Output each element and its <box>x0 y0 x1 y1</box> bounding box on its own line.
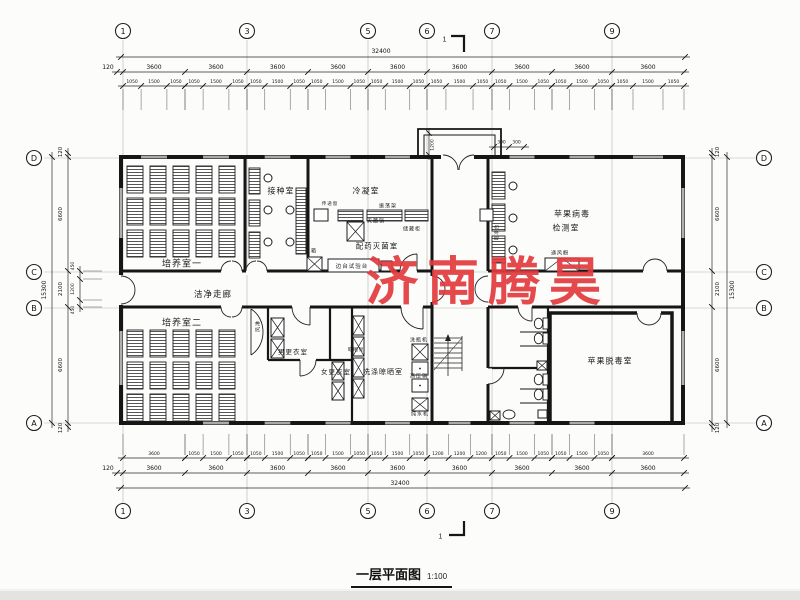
dim-label: 6600 <box>58 207 64 221</box>
dim-label: 3600 <box>514 64 529 71</box>
door-opening <box>221 267 242 275</box>
dim-label: 1050 <box>170 79 182 85</box>
dim-label: 3600 <box>148 451 160 457</box>
dim-label: 1500 <box>210 79 222 85</box>
grid-bubble-label: A <box>31 419 37 428</box>
dim-label: 1500 <box>148 79 160 85</box>
dim-label: 3600 <box>146 465 161 472</box>
dim-label: 1050 <box>250 451 262 457</box>
stool <box>264 238 272 246</box>
air-shower <box>251 309 263 355</box>
page-footer-bar <box>0 589 800 600</box>
dim-label: 1050 <box>311 451 323 457</box>
rack-shelf <box>249 232 260 258</box>
dim-label: 1500 <box>392 451 404 457</box>
dim-label: 6600 <box>715 358 721 372</box>
rack-shelf <box>249 200 260 226</box>
rack-shelf <box>173 230 189 257</box>
dim-label: 3600 <box>574 465 589 472</box>
dim-label: 1050 <box>598 79 610 85</box>
dim-label: 120 <box>102 64 114 71</box>
rack-shelf <box>338 210 363 221</box>
rack-shelf <box>196 362 212 389</box>
door-opening <box>246 267 267 275</box>
dim-label: 1050 <box>431 79 443 85</box>
dim-label: 1500 <box>210 451 222 457</box>
stool <box>264 174 272 182</box>
dim-label: 1200 <box>432 451 444 457</box>
dim-label: 1500 <box>576 79 588 85</box>
equipment-dot <box>419 385 421 387</box>
dim-label: 3600 <box>208 465 223 472</box>
rack-shelf <box>196 394 212 421</box>
rack-shelf <box>367 210 402 221</box>
dim-label: 32400 <box>371 48 390 55</box>
drawing-title: 一层平面图 <box>356 567 421 582</box>
dim-label: 1050 <box>354 79 366 85</box>
dim-label: 1500 <box>332 451 344 457</box>
dim-label: 15300 <box>729 280 736 299</box>
dim-label: 15300 <box>41 280 48 299</box>
dim-label: 1050 <box>311 79 323 85</box>
grid-bubble-label: 6 <box>424 27 429 36</box>
rack-shelf <box>173 362 189 389</box>
drawing-title-block: 一层平面图1:100 <box>351 564 452 588</box>
rack-shelf <box>127 230 143 257</box>
grid-bubble-label: 1 <box>120 507 125 516</box>
rack-shelf <box>492 172 505 199</box>
dim-label: 3600 <box>330 465 345 472</box>
sink <box>503 410 515 419</box>
rack-shelf <box>150 166 166 193</box>
watermark: 济南腾昊 <box>366 252 610 314</box>
dim-label: 1050 <box>538 451 550 457</box>
rack-shelf <box>150 230 166 257</box>
dim-label: 1200 <box>430 139 436 151</box>
rack-shelf <box>196 230 212 257</box>
door-opening <box>300 356 316 364</box>
dim-label: 1200 <box>70 283 76 295</box>
grid-bubble-label: 5 <box>365 507 370 516</box>
rack-shelf <box>219 394 235 421</box>
dim-label: 120 <box>715 146 721 157</box>
dim-label: 1050 <box>555 451 567 457</box>
toilet <box>543 389 548 400</box>
toilet-bowl <box>534 374 542 385</box>
dim-label: 1050 <box>538 79 550 85</box>
rack-shelf <box>173 330 189 357</box>
rack-shelf <box>150 362 166 389</box>
rack-shelf <box>173 166 189 193</box>
dim-label: 1500 <box>392 79 404 85</box>
dim-label: 1500 <box>272 451 284 457</box>
dim-label: 6600 <box>58 358 64 372</box>
equipment-box <box>314 209 328 221</box>
rack-shelf <box>492 204 505 231</box>
door-opening <box>484 368 492 384</box>
dim-label: 1050 <box>250 79 262 85</box>
rack-shelf <box>219 362 235 389</box>
dim-label: 1500 <box>576 451 588 457</box>
rack-shelf <box>150 330 166 357</box>
rack-shelf <box>150 198 166 225</box>
stair-arrow-head <box>445 334 451 341</box>
grid-bubble-label: B <box>761 304 767 313</box>
dim-label: 3600 <box>146 64 161 71</box>
dim-label: 1050 <box>495 79 507 85</box>
toilet-bowl <box>534 389 542 400</box>
dim-label: 1050 <box>293 79 305 85</box>
dim-label: 1050 <box>293 451 305 457</box>
grid-bubble-label: 5 <box>365 27 370 36</box>
grid-bubble-label: 3 <box>244 507 249 516</box>
rack-shelf <box>196 198 212 225</box>
stool <box>286 206 294 214</box>
door-opening <box>637 309 661 317</box>
dim-label: 120 <box>102 465 114 472</box>
rack-shelf <box>173 198 189 225</box>
toilet-bowl <box>534 318 542 329</box>
grid-bubble-label: D <box>761 154 767 163</box>
dim-label: 1050 <box>232 79 244 85</box>
grid-bubble-label: 7 <box>489 27 494 36</box>
dim-label: 1500 <box>332 79 344 85</box>
grid-bubble-label: C <box>761 268 767 277</box>
rack-shelf <box>219 198 235 225</box>
detox-room-wall <box>550 313 672 422</box>
equipment-dot <box>419 368 421 370</box>
dim-label: 1500 <box>516 79 528 85</box>
dim-label: 3600 <box>640 64 655 71</box>
door-opening <box>643 267 667 275</box>
dim-label: 3600 <box>452 465 467 472</box>
toilet <box>543 374 548 385</box>
equipment-box <box>538 410 547 418</box>
grid-bubble-label: 9 <box>609 507 614 516</box>
dim-label: 3600 <box>574 64 589 71</box>
dim-label: 3600 <box>640 465 655 472</box>
dim-label: 3600 <box>270 64 285 71</box>
dim-label: 1050 <box>126 79 138 85</box>
dim-label: 2100 <box>715 282 721 296</box>
dim-label: 3600 <box>270 465 285 472</box>
rack-shelf <box>196 166 212 193</box>
drawing-scale: 1:100 <box>427 572 447 581</box>
dim-label: 1500 <box>454 79 466 85</box>
rack-shelf <box>219 166 235 193</box>
floorplan-page: 3240012036003600360036003600360036003600… <box>0 0 800 600</box>
dim-label: 1050 <box>598 451 610 457</box>
equipment-box <box>480 209 493 221</box>
dim-label: 1050 <box>188 451 200 457</box>
dim-label: 6600 <box>715 207 721 221</box>
dim-label: 1050 <box>371 79 383 85</box>
dim-label: 1050 <box>617 79 629 85</box>
toilet-bowl <box>534 333 542 344</box>
stool <box>264 206 272 214</box>
dim-label: 1050 <box>232 451 244 457</box>
dim-label: 450 <box>70 306 76 315</box>
rack-shelf <box>127 394 143 421</box>
rack-shelf <box>196 330 212 357</box>
dim-label: 3600 <box>514 465 529 472</box>
dim-label: 120 <box>58 422 64 433</box>
grid-bubble-label: A <box>761 419 767 428</box>
dim-label: 450 <box>70 262 76 271</box>
dim-label: 1500 <box>272 79 284 85</box>
dim-label: 3600 <box>330 64 345 71</box>
dim-label: 1500 <box>516 451 528 457</box>
dim-label: 1050 <box>555 79 567 85</box>
rack-shelf <box>127 362 143 389</box>
dim-label: 1050 <box>354 451 366 457</box>
rack-shelf <box>150 394 166 421</box>
rack-shelf <box>173 394 189 421</box>
dim-label: 1200 <box>475 451 487 457</box>
dim-label: 3600 <box>452 64 467 71</box>
dim-label: 1050 <box>477 79 489 85</box>
dim-label: 3600 <box>390 64 405 71</box>
toilet <box>543 333 548 344</box>
rack-shelf <box>219 330 235 357</box>
door-opening <box>441 152 474 161</box>
dim-label: 1500 <box>642 79 654 85</box>
stool <box>509 182 517 190</box>
dim-label: 120 <box>58 146 64 157</box>
grid-bubble-label: C <box>31 268 37 277</box>
section-cut-mark-bottom <box>449 521 464 535</box>
section-cut-mark-top <box>451 36 464 52</box>
dim-label: 3600 <box>208 64 223 71</box>
door-opening <box>116 275 125 305</box>
rack-shelf <box>249 168 260 194</box>
dim-label: 1050 <box>495 451 507 457</box>
grid-bubble-label: 1 <box>120 27 125 36</box>
stool <box>286 238 294 246</box>
stool <box>509 214 517 222</box>
dim-label: 3600 <box>642 451 654 457</box>
dim-label: 1050 <box>371 451 383 457</box>
rack-shelf <box>219 230 235 257</box>
dim-label: 1050 <box>188 79 200 85</box>
dim-label: 1050 <box>413 451 425 457</box>
grid-bubble-label: 6 <box>424 507 429 516</box>
grid-bubble-label: 9 <box>609 27 614 36</box>
rack-shelf <box>405 210 428 221</box>
door-opening <box>221 303 242 311</box>
dim-label: 300 <box>512 140 521 146</box>
dim-label: 120 <box>715 422 721 433</box>
dim-label: 32400 <box>390 480 409 487</box>
dim-label: 1050 <box>668 79 680 85</box>
dim-label: 3600 <box>390 465 405 472</box>
grid-bubble-label: 7 <box>489 507 494 516</box>
dim-label: 1050 <box>413 79 425 85</box>
grid-bubble-label: B <box>31 304 37 313</box>
rack-shelf <box>127 198 143 225</box>
grid-bubble-label: D <box>31 154 37 163</box>
dim-label: 2100 <box>58 282 64 296</box>
door-opening <box>292 303 310 311</box>
toilet <box>543 318 548 329</box>
rack-shelf <box>296 188 306 254</box>
rack-shelf <box>127 166 143 193</box>
rack-shelf <box>127 330 143 357</box>
grid-bubble-label: 3 <box>244 27 249 36</box>
dim-label: 1200 <box>454 451 466 457</box>
